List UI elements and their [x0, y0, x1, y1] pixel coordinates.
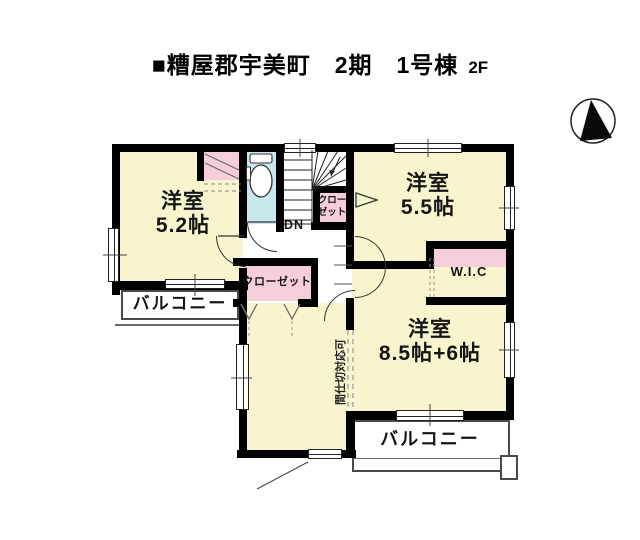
property-title: ■糟屋郡宇美町 2期 1号棟 — [152, 46, 458, 80]
balcony-post — [500, 455, 518, 480]
hall-closet-label: クローゼット — [239, 264, 315, 300]
north-arrow-icon — [571, 99, 615, 143]
window — [394, 143, 462, 153]
stair-closet-line1: クロー — [318, 195, 347, 207]
wall — [276, 144, 284, 232]
room-5-2-label: 洋室 5.2帖 — [128, 190, 238, 238]
balcony-left-edge — [115, 324, 245, 326]
wic-label: W.I.C — [430, 245, 508, 299]
balcony-bottom-edge — [354, 458, 500, 459]
balcony-left-label: バルコニー — [121, 291, 239, 317]
toilet-floor — [245, 150, 278, 224]
room-5-5-name: 洋室 — [368, 172, 488, 196]
stair-closet-line2: ゼット — [318, 207, 347, 219]
window — [108, 228, 119, 282]
window — [284, 143, 316, 153]
partition-note: 間仕切対応可 — [300, 328, 380, 416]
room-5-2-name: 洋室 — [128, 190, 238, 214]
room-5-5-size: 5.5帖 — [368, 196, 488, 220]
room-8-5-door-arc — [324, 290, 355, 321]
window — [396, 410, 464, 421]
window — [236, 344, 249, 410]
stair-closet-label: クロー ゼット — [314, 190, 350, 224]
wall — [239, 144, 247, 238]
wall — [197, 150, 204, 181]
floor-plan-page: ■糟屋郡宇美町 2期 1号棟 2F — [0, 0, 640, 540]
window — [504, 186, 515, 230]
toilet-door-arc — [247, 222, 277, 252]
floor-label: 2F — [468, 58, 488, 78]
wall — [298, 299, 318, 307]
stairs-down-label: DN — [284, 218, 314, 232]
plan-linework — [0, 0, 640, 540]
room-5-2-size: 5.2帖 — [128, 214, 238, 238]
room-5-5-label: 洋室 5.5帖 — [368, 172, 488, 220]
window — [308, 449, 342, 459]
balcony-bottom-label: バルコニー — [352, 424, 508, 454]
page-title: ■糟屋郡宇美町 2期 1号棟 2F — [0, 46, 640, 80]
stair-headroom-hatch — [203, 151, 241, 180]
window — [165, 279, 225, 289]
